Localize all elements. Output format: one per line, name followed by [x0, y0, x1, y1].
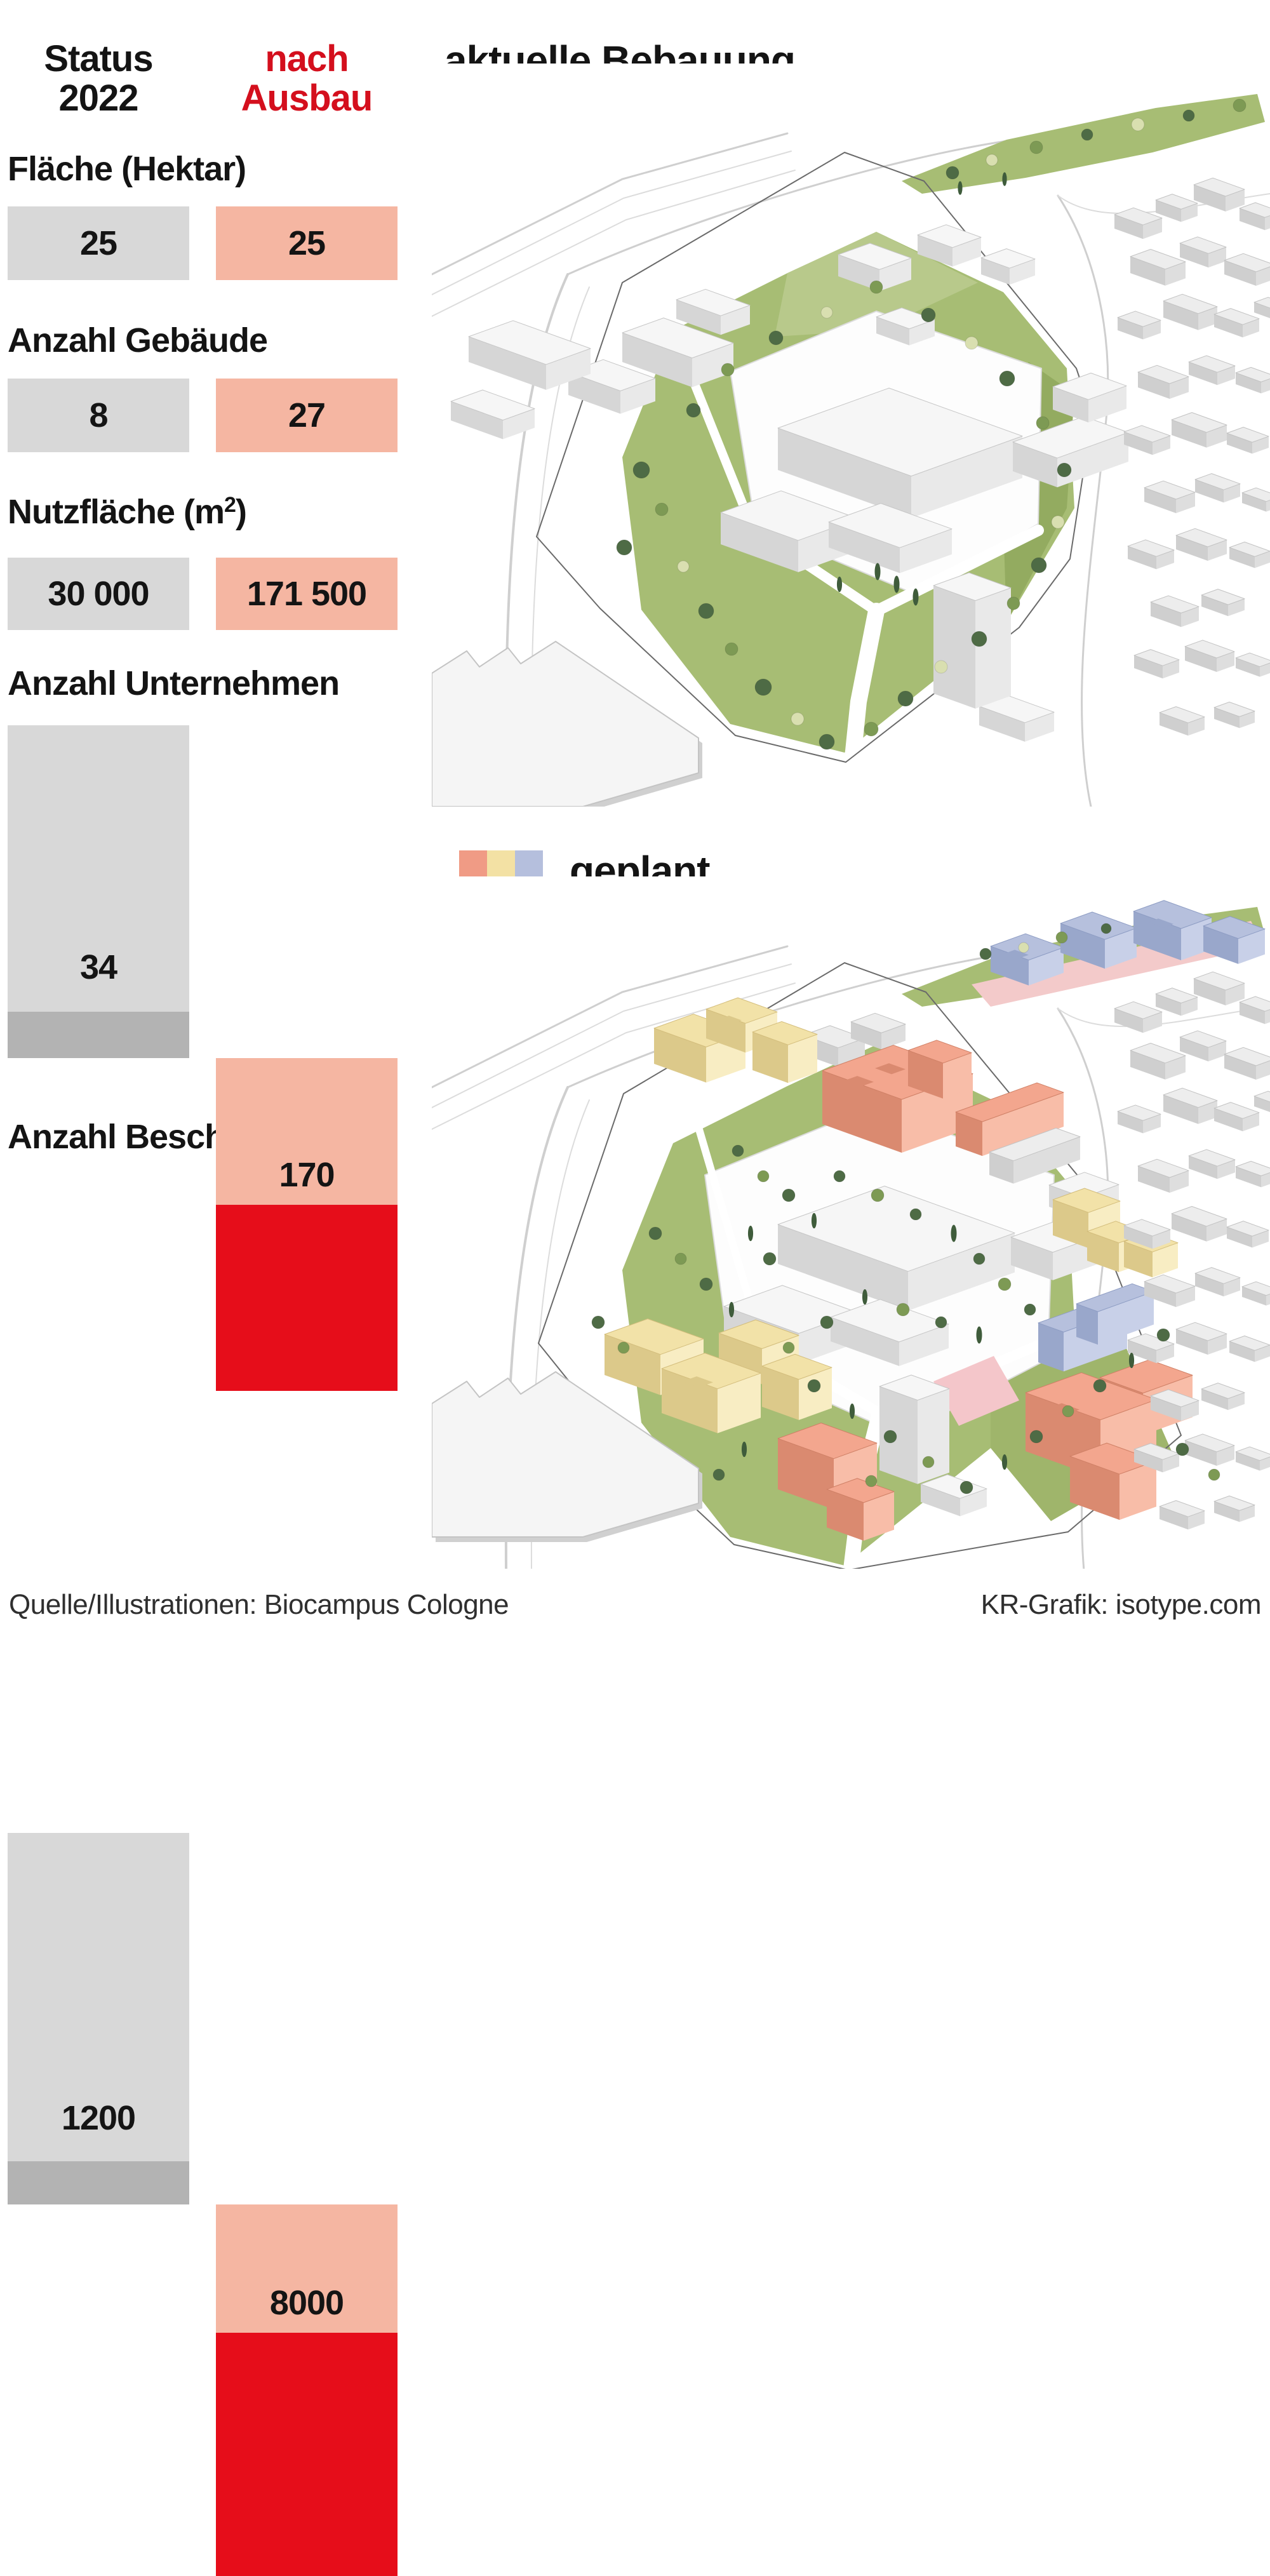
bar-salmon-segment: 8000: [216, 2204, 398, 2333]
bar-flaeche-status: 25: [8, 206, 189, 280]
bar-base-segment: [8, 1012, 189, 1058]
bar-red-segment: [216, 1205, 398, 1391]
metric-label-gebaeude: Anzahl Gebäude: [8, 323, 267, 358]
bar-red-segment: [216, 2333, 398, 2576]
metric-label-flaeche: Fläche (Hektar): [8, 151, 246, 186]
bar-salmon-segment: 170: [216, 1058, 398, 1205]
column-header-status-2022: Status 2022: [8, 39, 189, 118]
graphic-credit: KR-Grafik: isotype.com: [981, 1589, 1261, 1621]
column-header-nach-ausbau: nach Ausbau: [216, 39, 398, 118]
infographic: Status 2022 nach Ausbau Fläche (Hektar) …: [0, 0, 1270, 1639]
bar-beschaeftigte-status: 1200: [8, 1833, 189, 2204]
bar-beschaeftigte-ausbau: 8000: [216, 2204, 398, 2576]
header-status-line2: 2022: [58, 77, 138, 119]
bar-unternehmen-status: 34: [8, 725, 189, 1058]
source-credit: Quelle/Illustrationen: Biocampus Cologne: [9, 1589, 509, 1621]
bar-gebaeude-ausbau: 27: [216, 379, 398, 452]
metric-label-nutzflaeche: Nutzfläche (m2): [8, 494, 246, 529]
bar-flaeche-ausbau: 25: [216, 206, 398, 280]
bar-base-segment: [8, 2161, 189, 2204]
header-ausbau-line2: Ausbau: [241, 77, 373, 119]
metric-label-unternehmen: Anzahl Unternehmen: [8, 666, 339, 701]
bar-unternehmen-ausbau: 170: [216, 1058, 398, 1391]
illustration-aktuelle-bebauung: [432, 64, 1270, 807]
illustration-geplant: [432, 876, 1270, 1569]
header-ausbau-line1: nach: [265, 38, 348, 79]
header-status-line1: Status: [44, 38, 152, 79]
bar-nutzflaeche-status: 30 000: [8, 558, 189, 630]
bar-nutzflaeche-ausbau: 171 500: [216, 558, 398, 630]
bar-gebaeude-status: 8: [8, 379, 189, 452]
